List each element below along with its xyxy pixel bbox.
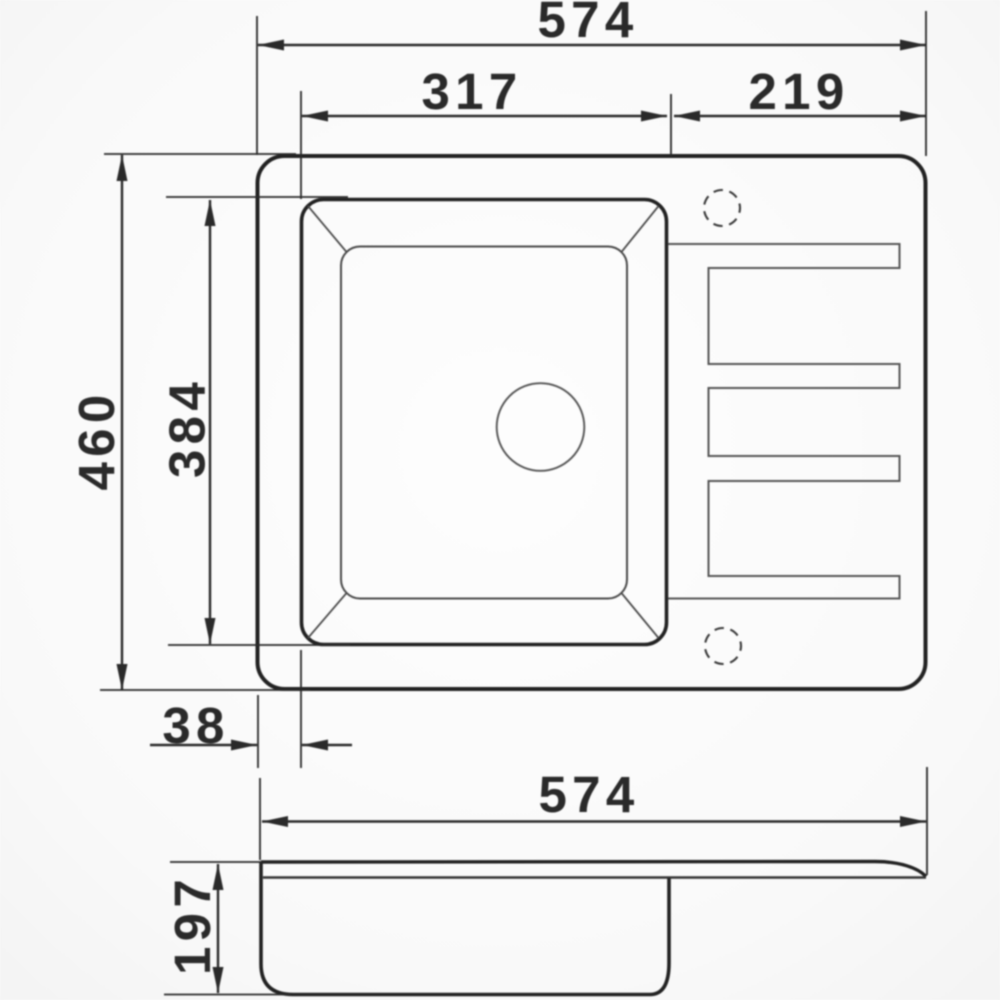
svg-text:219: 219 [749,63,850,120]
svg-text:317: 317 [422,63,523,120]
svg-text:574: 574 [538,0,639,48]
svg-text:574: 574 [539,766,640,823]
svg-text:197: 197 [164,874,221,975]
svg-text:384: 384 [159,377,216,478]
svg-text:38: 38 [162,697,229,754]
svg-text:460: 460 [68,390,125,491]
